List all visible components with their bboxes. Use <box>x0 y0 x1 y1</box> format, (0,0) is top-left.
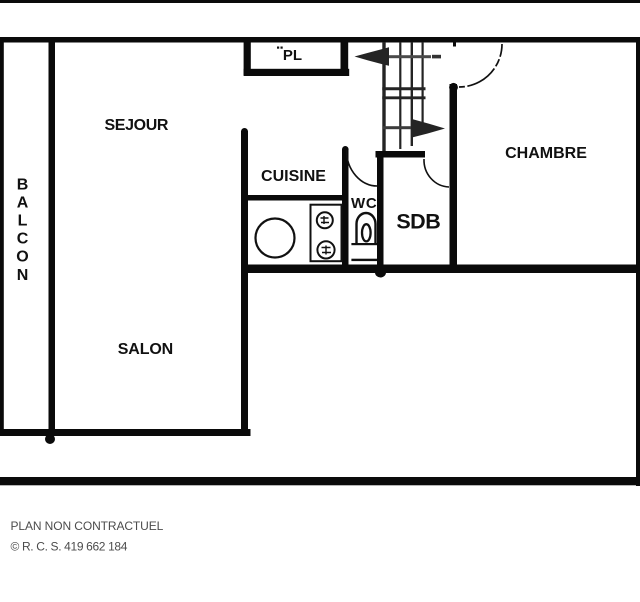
svg-text:B: B <box>17 177 29 194</box>
svg-text:N: N <box>17 267 29 284</box>
svg-text:PL: PL <box>283 47 302 64</box>
svg-text:O: O <box>16 249 28 266</box>
svg-text:CUISINE: CUISINE <box>261 168 326 185</box>
svg-text:SALON: SALON <box>118 341 173 358</box>
svg-text:L: L <box>18 213 28 230</box>
svg-text:© R. C. S. 419 662 184: © R. C. S. 419 662 184 <box>11 540 128 554</box>
svg-text:A: A <box>17 195 29 212</box>
svg-text:SDB: SDB <box>396 210 440 234</box>
svg-text:C: C <box>17 231 29 248</box>
svg-text:WC: WC <box>351 195 378 212</box>
svg-text:SEJOUR: SEJOUR <box>104 117 168 134</box>
svg-text:PLAN NON CONTRACTUEL: PLAN NON CONTRACTUEL <box>11 519 164 533</box>
svg-text:CHAMBRE: CHAMBRE <box>505 145 587 162</box>
